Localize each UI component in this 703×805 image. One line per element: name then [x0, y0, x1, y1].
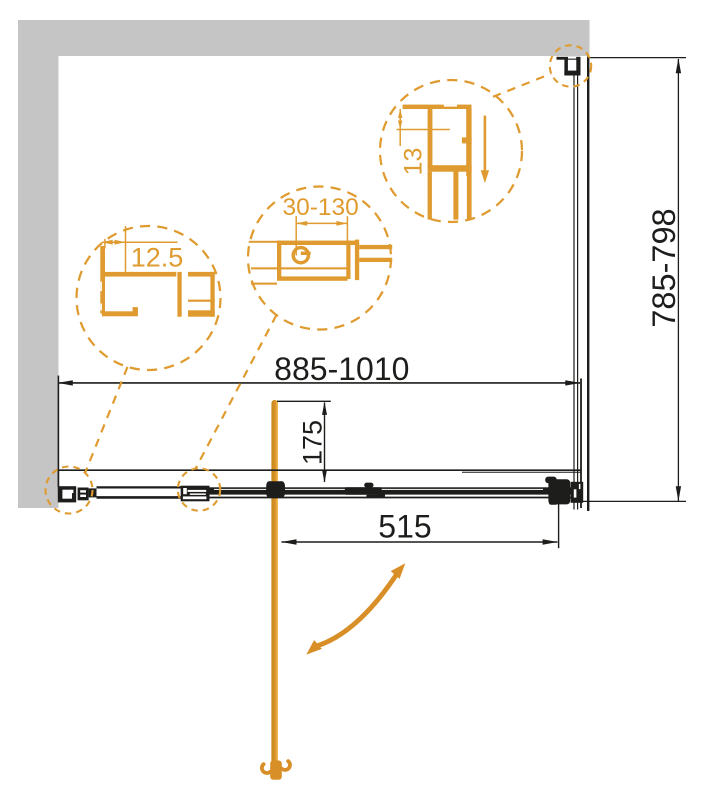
svg-text:175: 175 — [298, 420, 328, 465]
svg-text:885-1010: 885-1010 — [274, 351, 409, 387]
svg-text:30-130: 30-130 — [282, 194, 358, 221]
svg-text:515: 515 — [378, 508, 431, 544]
svg-text:13: 13 — [400, 148, 428, 176]
svg-text:785-798: 785-798 — [646, 208, 682, 327]
svg-text:12.5: 12.5 — [131, 242, 184, 272]
